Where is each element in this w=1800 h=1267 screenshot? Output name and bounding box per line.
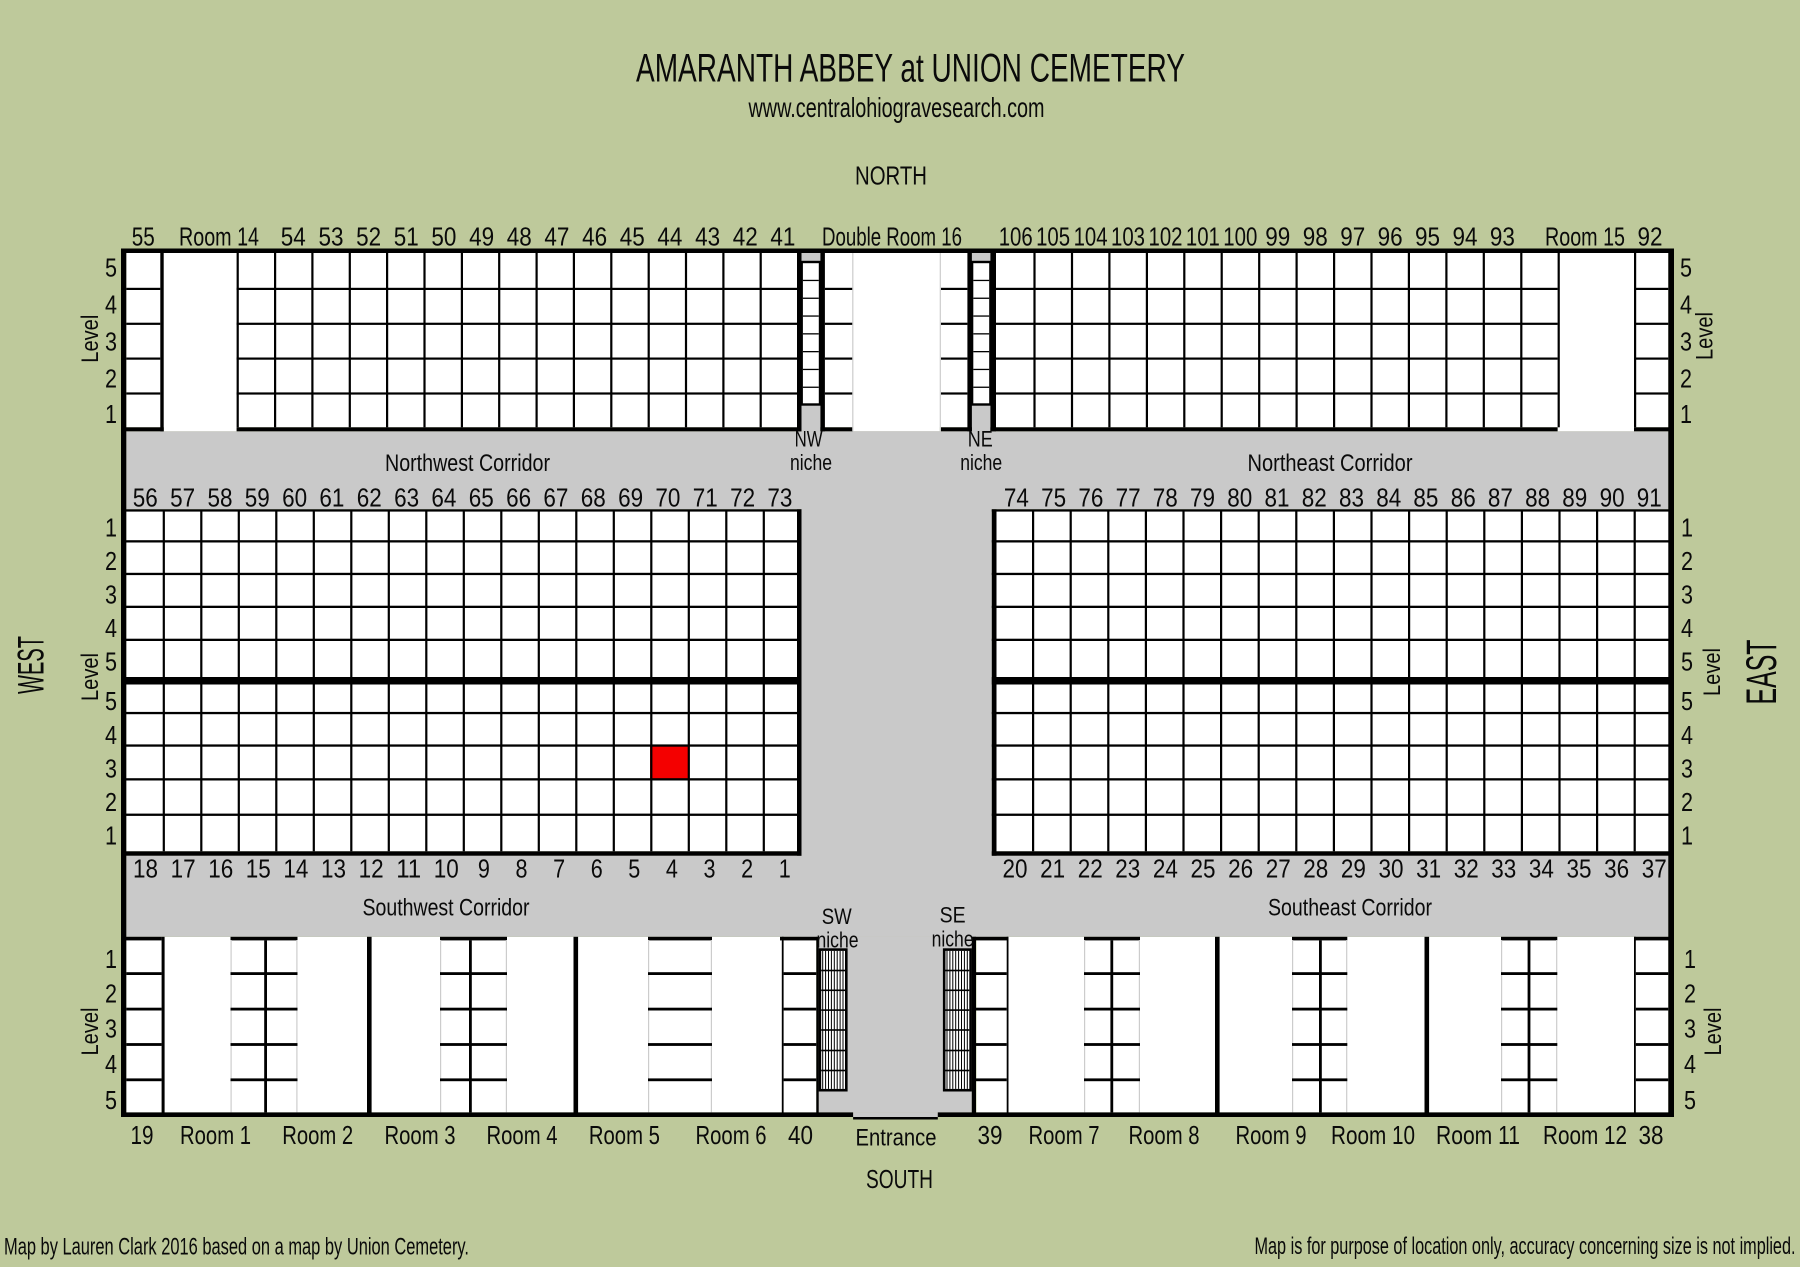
svg-text:59: 59 [245, 483, 270, 513]
svg-text:33: 33 [1491, 854, 1516, 884]
svg-text:85: 85 [1413, 483, 1438, 513]
svg-text:67: 67 [543, 483, 568, 513]
svg-text:7: 7 [553, 854, 565, 884]
svg-text:69: 69 [618, 483, 643, 513]
svg-text:32: 32 [1454, 854, 1479, 884]
svg-text:2: 2 [105, 979, 117, 1009]
svg-text:64: 64 [431, 483, 456, 513]
svg-text:86: 86 [1451, 483, 1476, 513]
svg-text:Room 4: Room 4 [487, 1120, 558, 1150]
svg-text:90: 90 [1600, 483, 1625, 513]
svg-text:Level: Level [1692, 312, 1719, 360]
svg-text:5: 5 [1681, 646, 1693, 676]
svg-text:3: 3 [105, 579, 117, 609]
svg-text:18: 18 [133, 854, 158, 884]
svg-text:10: 10 [434, 854, 459, 884]
svg-text:78: 78 [1153, 483, 1178, 513]
svg-text:56: 56 [133, 483, 158, 513]
svg-text:43: 43 [695, 222, 720, 252]
svg-text:12: 12 [359, 854, 384, 884]
svg-text:8: 8 [516, 854, 528, 884]
svg-text:22: 22 [1078, 854, 1103, 884]
svg-text:SE: SE [940, 903, 966, 928]
svg-text:2: 2 [1684, 979, 1696, 1009]
svg-text:31: 31 [1416, 854, 1441, 884]
svg-text:1: 1 [1680, 399, 1692, 429]
svg-text:4: 4 [105, 1049, 117, 1079]
svg-text:73: 73 [767, 483, 792, 513]
svg-text:71: 71 [693, 483, 718, 513]
svg-text:niche: niche [790, 450, 832, 475]
svg-text:19: 19 [131, 1120, 154, 1150]
svg-text:4: 4 [105, 289, 117, 319]
svg-text:48: 48 [507, 222, 532, 252]
svg-text:EAST: EAST [1738, 640, 1786, 705]
svg-text:Room 5: Room 5 [589, 1120, 660, 1150]
svg-text:Room 9: Room 9 [1236, 1120, 1307, 1150]
svg-text:60: 60 [282, 483, 307, 513]
svg-text:103: 103 [1111, 222, 1145, 252]
svg-text:5: 5 [628, 854, 640, 884]
svg-text:95: 95 [1415, 222, 1440, 252]
svg-text:94: 94 [1453, 222, 1478, 252]
svg-text:104: 104 [1074, 222, 1108, 252]
svg-text:50: 50 [431, 222, 456, 252]
svg-text:SOUTH: SOUTH [866, 1164, 933, 1194]
svg-text:niche: niche [817, 927, 859, 952]
svg-text:83: 83 [1339, 483, 1364, 513]
svg-text:24: 24 [1153, 854, 1178, 884]
svg-text:49: 49 [469, 222, 494, 252]
svg-text:91: 91 [1637, 483, 1662, 513]
svg-text:Entrance: Entrance [856, 1125, 937, 1152]
svg-text:2: 2 [741, 854, 753, 884]
svg-text:65: 65 [469, 483, 494, 513]
svg-text:62: 62 [357, 483, 382, 513]
svg-text:28: 28 [1303, 854, 1328, 884]
svg-text:58: 58 [208, 483, 233, 513]
svg-text:3: 3 [105, 753, 117, 783]
svg-text:105: 105 [1036, 222, 1070, 252]
svg-text:2: 2 [105, 787, 117, 817]
svg-text:13: 13 [321, 854, 346, 884]
svg-text:2: 2 [1680, 364, 1692, 394]
svg-text:1: 1 [779, 854, 791, 884]
svg-text:NW: NW [795, 426, 823, 451]
svg-text:82: 82 [1302, 483, 1327, 513]
svg-text:81: 81 [1265, 483, 1290, 513]
svg-text:42: 42 [733, 222, 758, 252]
svg-text:Room 10: Room 10 [1331, 1120, 1415, 1150]
svg-text:6: 6 [591, 854, 603, 884]
svg-text:80: 80 [1227, 483, 1252, 513]
svg-text:NE: NE [968, 426, 993, 451]
svg-text:97: 97 [1340, 222, 1365, 252]
svg-text:96: 96 [1378, 222, 1403, 252]
svg-text:1: 1 [1681, 821, 1693, 851]
svg-text:102: 102 [1149, 222, 1183, 252]
svg-text:34: 34 [1529, 854, 1554, 884]
svg-text:Room 3: Room 3 [385, 1120, 456, 1150]
svg-text:3: 3 [105, 327, 117, 357]
svg-text:5: 5 [1680, 252, 1692, 282]
svg-text:Map is for purpose of location: Map is for purpose of location only, acc… [1255, 1233, 1796, 1260]
svg-text:16: 16 [208, 854, 233, 884]
svg-text:Room 14: Room 14 [179, 222, 259, 252]
svg-text:4: 4 [1680, 289, 1692, 319]
svg-text:57: 57 [170, 483, 195, 513]
svg-text:4: 4 [1681, 720, 1693, 750]
svg-text:23: 23 [1115, 854, 1140, 884]
svg-text:53: 53 [319, 222, 344, 252]
svg-text:21: 21 [1040, 854, 1065, 884]
svg-text:Room 15: Room 15 [1545, 222, 1625, 252]
svg-text:99: 99 [1265, 222, 1290, 252]
svg-text:30: 30 [1379, 854, 1404, 884]
svg-text:2: 2 [1681, 546, 1693, 576]
svg-text:20: 20 [1003, 854, 1028, 884]
svg-text:66: 66 [506, 483, 531, 513]
svg-text:Double Room 16: Double Room 16 [822, 222, 962, 252]
svg-text:63: 63 [394, 483, 419, 513]
svg-text:Level: Level [1699, 648, 1726, 696]
svg-text:84: 84 [1376, 483, 1401, 513]
svg-text:Level: Level [77, 1008, 104, 1056]
svg-text:14: 14 [283, 854, 308, 884]
svg-text:11: 11 [396, 854, 421, 884]
svg-text:29: 29 [1341, 854, 1366, 884]
svg-text:37: 37 [1642, 854, 1667, 884]
svg-text:Room 11: Room 11 [1436, 1120, 1520, 1150]
svg-text:40: 40 [788, 1120, 813, 1150]
svg-text:Room 1: Room 1 [180, 1120, 251, 1150]
svg-text:47: 47 [544, 222, 569, 252]
svg-text:45: 45 [620, 222, 645, 252]
svg-text:Map by Lauren Clark 2016 based: Map by Lauren Clark 2016 based on a map … [4, 1234, 469, 1261]
svg-text:101: 101 [1186, 222, 1220, 252]
svg-text:52: 52 [356, 222, 381, 252]
svg-text:38: 38 [1639, 1120, 1664, 1150]
svg-text:100: 100 [1223, 222, 1257, 252]
svg-text:niche: niche [960, 450, 1002, 475]
svg-text:5: 5 [105, 1085, 117, 1115]
svg-text:4: 4 [666, 854, 678, 884]
svg-text:www.centralohiogravesearch.com: www.centralohiogravesearch.com [748, 92, 1045, 123]
svg-text:Northeast Corridor: Northeast Corridor [1248, 450, 1413, 477]
svg-text:Southeast Corridor: Southeast Corridor [1268, 895, 1432, 922]
svg-text:3: 3 [105, 1014, 117, 1044]
svg-text:NORTH: NORTH [855, 161, 927, 191]
svg-text:51: 51 [394, 222, 419, 252]
svg-text:5: 5 [1684, 1085, 1696, 1115]
svg-text:Room 8: Room 8 [1129, 1120, 1200, 1150]
svg-text:niche: niche [932, 927, 974, 952]
svg-text:77: 77 [1116, 483, 1141, 513]
svg-text:92: 92 [1638, 222, 1663, 252]
svg-text:70: 70 [655, 483, 680, 513]
svg-text:1: 1 [105, 944, 117, 974]
svg-text:55: 55 [132, 222, 155, 252]
svg-text:2: 2 [105, 546, 117, 576]
svg-text:4: 4 [1681, 613, 1693, 643]
svg-text:2: 2 [1681, 787, 1693, 817]
svg-text:Room 12: Room 12 [1543, 1120, 1627, 1150]
svg-text:44: 44 [657, 222, 682, 252]
svg-text:68: 68 [581, 483, 606, 513]
svg-text:15: 15 [246, 854, 271, 884]
svg-text:1: 1 [1681, 512, 1693, 542]
svg-text:17: 17 [171, 854, 196, 884]
svg-text:54: 54 [281, 222, 306, 252]
svg-text:41: 41 [770, 222, 795, 252]
svg-text:5: 5 [1681, 686, 1693, 716]
svg-text:4: 4 [105, 613, 117, 643]
svg-text:Northwest Corridor: Northwest Corridor [385, 450, 550, 477]
svg-text:2: 2 [105, 364, 117, 394]
svg-text:88: 88 [1525, 483, 1550, 513]
svg-text:93: 93 [1490, 222, 1515, 252]
svg-text:AMARANTH ABBEY at UNION CEMETE: AMARANTH ABBEY at UNION CEMETERY [636, 47, 1185, 91]
svg-text:3: 3 [704, 854, 716, 884]
svg-text:3: 3 [1684, 1014, 1696, 1044]
svg-text:Room 7: Room 7 [1029, 1120, 1100, 1150]
svg-text:39: 39 [978, 1120, 1003, 1150]
svg-text:76: 76 [1078, 483, 1103, 513]
svg-text:1: 1 [105, 512, 117, 542]
svg-text:Room 2: Room 2 [282, 1120, 353, 1150]
svg-text:1: 1 [1684, 944, 1696, 974]
svg-text:3: 3 [1681, 579, 1693, 609]
svg-text:9: 9 [478, 854, 490, 884]
svg-text:35: 35 [1567, 854, 1592, 884]
svg-text:5: 5 [105, 646, 117, 676]
svg-text:Level: Level [77, 653, 104, 701]
svg-text:79: 79 [1190, 483, 1215, 513]
svg-text:25: 25 [1191, 854, 1216, 884]
svg-text:SW: SW [822, 904, 852, 929]
svg-text:61: 61 [319, 483, 344, 513]
svg-text:46: 46 [582, 222, 607, 252]
svg-text:1: 1 [105, 821, 117, 851]
svg-text:WEST: WEST [11, 636, 52, 694]
svg-text:75: 75 [1041, 483, 1066, 513]
svg-text:Level: Level [77, 315, 104, 363]
svg-text:5: 5 [105, 252, 117, 282]
svg-text:4: 4 [105, 720, 117, 750]
svg-text:26: 26 [1228, 854, 1253, 884]
svg-text:36: 36 [1604, 854, 1629, 884]
svg-text:89: 89 [1562, 483, 1587, 513]
svg-text:3: 3 [1680, 327, 1692, 357]
svg-text:27: 27 [1266, 854, 1291, 884]
svg-text:Level: Level [1700, 1008, 1727, 1056]
svg-text:Room 6: Room 6 [696, 1120, 767, 1150]
svg-text:72: 72 [730, 483, 755, 513]
svg-text:Southwest Corridor: Southwest Corridor [363, 895, 530, 922]
svg-text:1: 1 [105, 399, 117, 429]
svg-text:3: 3 [1681, 753, 1693, 783]
svg-text:98: 98 [1303, 222, 1328, 252]
svg-text:87: 87 [1488, 483, 1513, 513]
svg-text:4: 4 [1684, 1049, 1696, 1079]
svg-text:106: 106 [999, 222, 1033, 252]
svg-text:74: 74 [1004, 483, 1029, 513]
svg-text:5: 5 [105, 686, 117, 716]
